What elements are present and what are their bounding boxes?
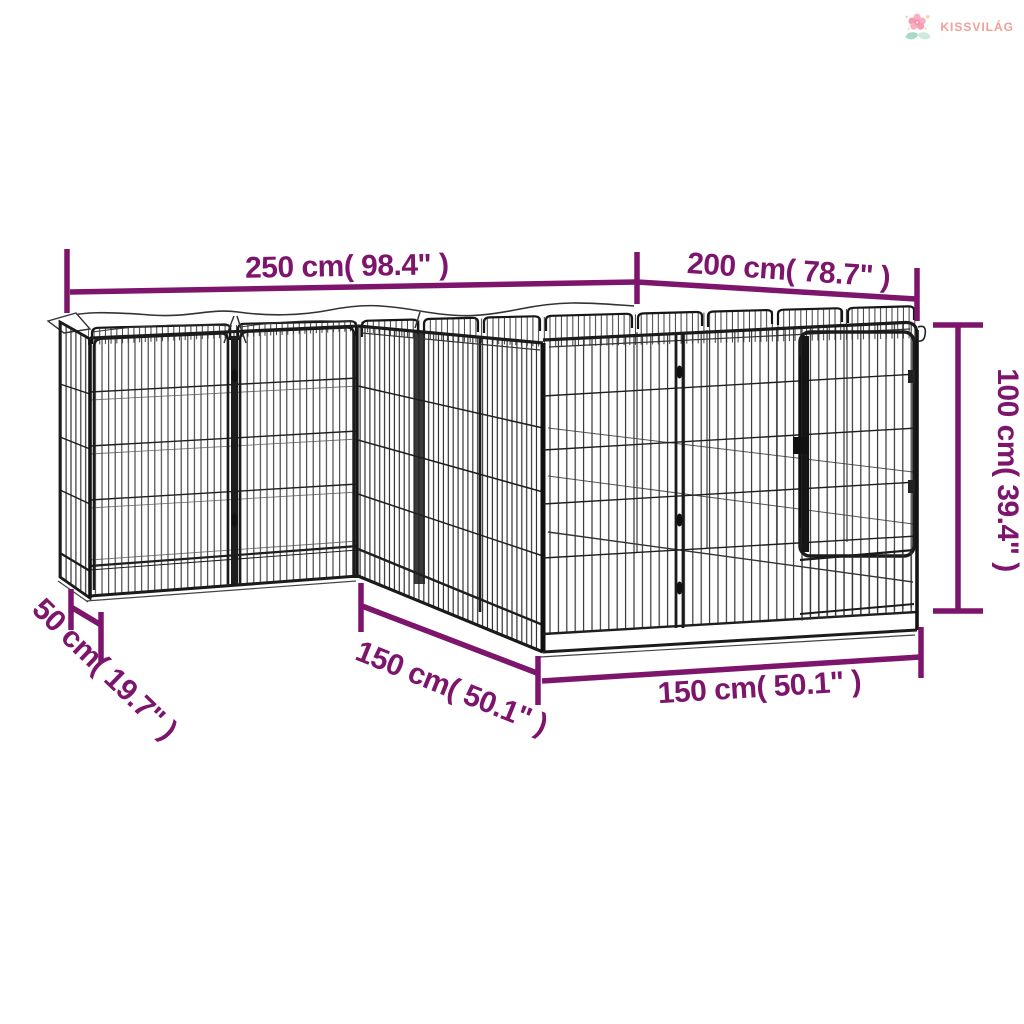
dimension-line-100cm	[933, 325, 983, 611]
diagonal-wall-dark-post	[414, 331, 425, 584]
pen-front-wall	[540, 322, 917, 657]
diagonal-side-wall	[358, 326, 543, 652]
left-end-panel	[58, 322, 90, 602]
dimension-label-100cm: 100 cm( 39.4" )	[991, 368, 1024, 572]
brand-name: KISSVILÁG	[940, 20, 1014, 34]
product-image-canvas: 250 cm( 98.4" ) 200 cm( 78.7" ) 100 cm( …	[0, 0, 1024, 1024]
brand-logo: KISSVILÁG	[901, 10, 1014, 44]
flower-icon	[901, 10, 935, 44]
dimension-label-150cm-diagonal: 150 cm( 50.1" )	[351, 635, 552, 742]
corridor-front-wall	[86, 326, 358, 601]
playpen-line-drawing: 250 cm( 98.4" ) 200 cm( 78.7" ) 100 cm( …	[0, 0, 1024, 1024]
gate-latch	[793, 437, 808, 454]
dimension-label-250cm: 250 cm( 98.4" )	[245, 248, 449, 285]
dimension-label-50cm: 50 cm( 19.7" )	[26, 592, 184, 746]
